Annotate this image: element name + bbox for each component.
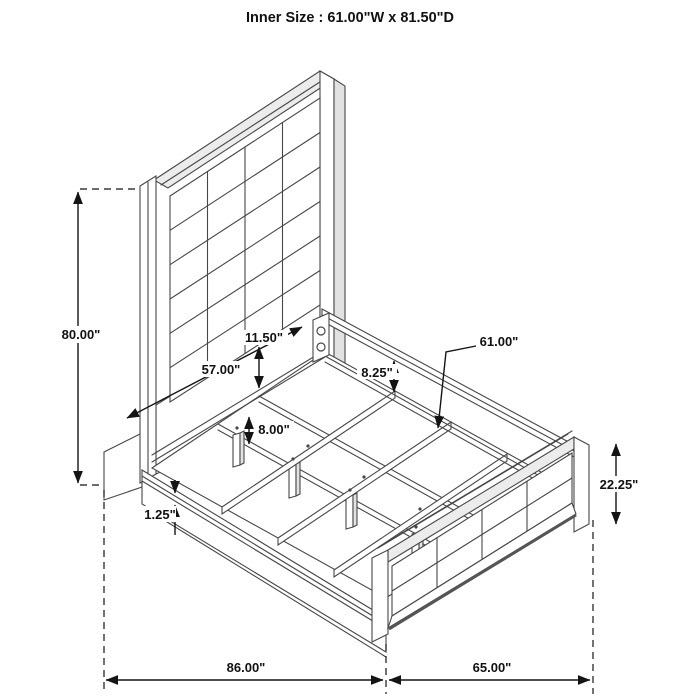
dimension-height: 80.00" — [56, 189, 136, 485]
diagram-page: 80.00" 57.00" 11.50" 8.25" 61.00" — [0, 0, 700, 700]
dim-label-overall-width: 65.00" — [473, 660, 512, 675]
dim-label-height: 80.00" — [62, 327, 101, 342]
footboard-right-post — [574, 437, 589, 532]
dim-label-overall-depth: 86.00" — [227, 660, 266, 675]
dim-label-panel-gap: 11.50" — [245, 330, 283, 345]
bolt-hole — [317, 327, 325, 335]
page-title: Inner Size : 61.00"W x 81.50"D — [246, 10, 454, 26]
dim-label-slat-length: 61.00" — [480, 334, 519, 349]
dim-label-headboard-width: 57.00" — [202, 362, 241, 377]
footboard-left-post — [372, 550, 388, 642]
dim-label-leg-height: 8.00" — [258, 422, 289, 437]
headboard-left-leg — [104, 433, 142, 500]
dim-label-footboard-height: 22.25" — [600, 477, 639, 492]
bed-dimension-diagram: 80.00" 57.00" 11.50" 8.25" 61.00" — [0, 0, 700, 700]
dim-label-rail-drop: 8.25" — [361, 365, 392, 380]
dimension-footboard-height: 22.25" — [594, 444, 644, 524]
bolt-hole — [317, 343, 325, 351]
rail-bracket — [313, 313, 329, 362]
dim-label-rail-lip: 1.25" — [144, 507, 175, 522]
